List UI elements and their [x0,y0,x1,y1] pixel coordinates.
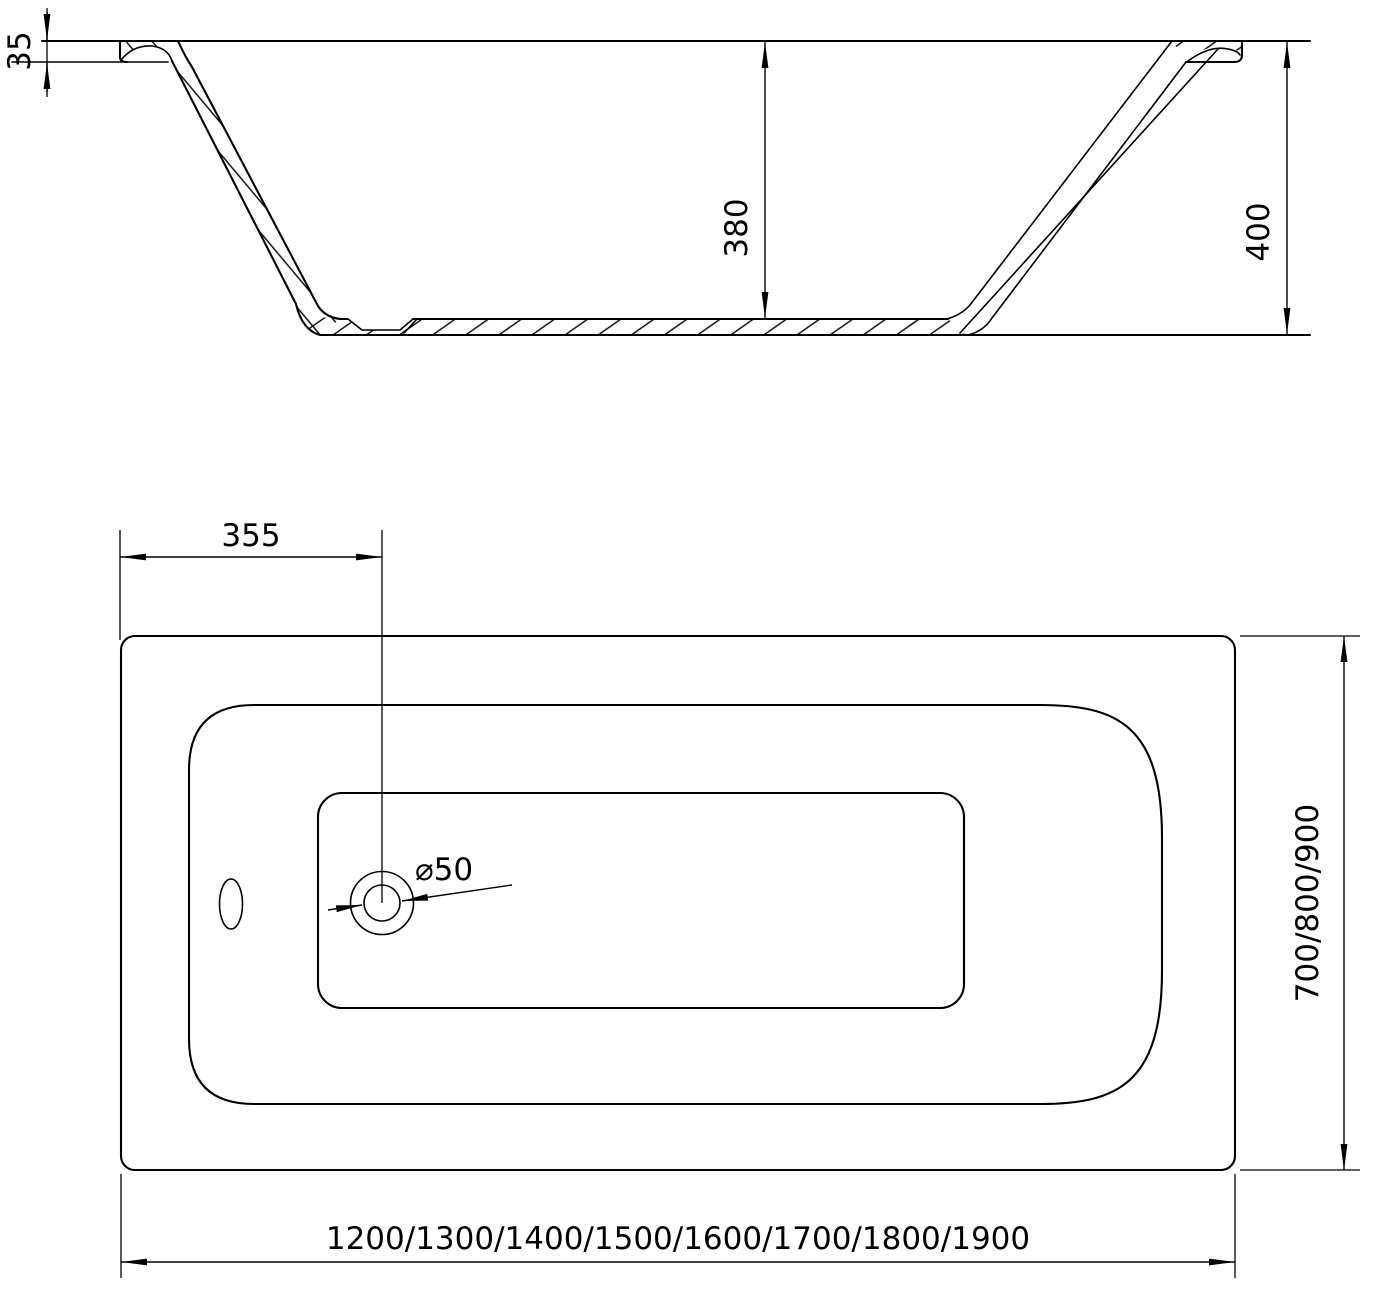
section-view: 35 380 400 [2,8,1310,335]
dim-drain-offset: 355 [120,518,382,903]
dim-drain-diameter-label: ⌀50 [415,852,473,888]
dim-rim-height: 35 [2,8,47,97]
left-wall-inner-line [178,41,340,319]
dim-rim-height-label: 35 [2,31,38,70]
dim-length-options-label: 1200/1300/1400/1500/1600/1700/1800/1900 [326,1221,1030,1257]
right-wall-line-inner [946,41,1172,319]
overflow-hole [220,879,243,929]
tub-wall-hatch [120,41,340,335]
dim-inner-depth-label: 380 [719,198,755,257]
dim-length-options: 1200/1300/1400/1500/1600/1700/1800/1900 [121,1174,1235,1278]
drawing-canvas: 35 380 400 355 [0,0,1377,1289]
dim-overall-height-label: 400 [1241,202,1277,261]
dim-overall-height: 400 [1241,42,1287,334]
plan-inner-rim [189,705,1162,1104]
plan-basin-floor [318,793,964,1008]
dim-drain-diameter: ⌀50 [328,852,512,910]
dim-width-options-label: 700/800/900 [1290,804,1326,1002]
dim-width-options: 700/800/900 [1240,636,1360,1170]
dim-drain-offset-label: 355 [221,518,280,554]
right-wall-line-outer [968,62,1186,335]
dim-drain-diameter-arrow-left [328,905,362,910]
plan-view: 355 ⌀50 700/800/900 1200/1300/1400/1500/… [120,518,1360,1278]
bathtub-technical-drawing: 35 380 400 355 [0,0,1377,1289]
plan-outer-rim [121,636,1235,1170]
right-wall-line-cross [960,49,1218,333]
dim-inner-depth: 380 [719,42,765,318]
